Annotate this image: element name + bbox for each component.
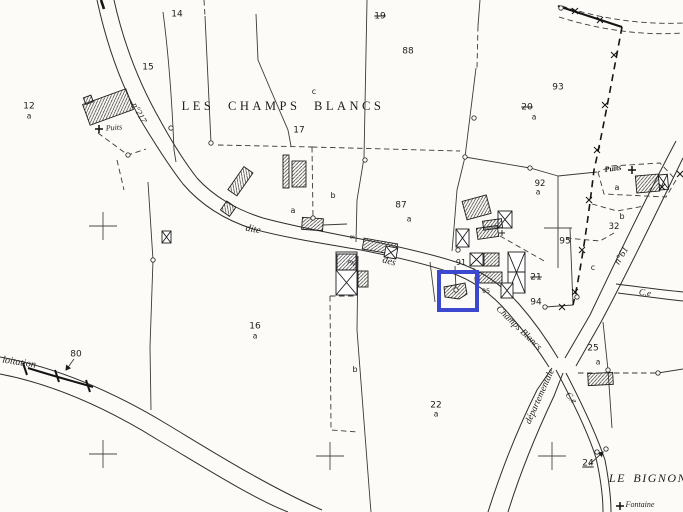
boundary-node xyxy=(169,126,173,130)
road-ce-south-edge xyxy=(618,293,683,301)
boundary-node xyxy=(595,450,599,454)
road-ce-north-edge xyxy=(616,284,683,292)
building-open-small xyxy=(162,231,171,243)
map-symbols xyxy=(89,6,683,510)
building-hatched xyxy=(228,167,253,196)
dashed-road-top-right-north xyxy=(562,6,683,23)
road-exploitation-north-edge xyxy=(0,357,322,510)
building-hatched xyxy=(220,201,235,216)
building-hatched xyxy=(81,83,134,125)
building-hatched xyxy=(283,155,289,188)
building-mixed xyxy=(336,252,357,295)
boundary-node xyxy=(472,116,476,120)
boundary-node xyxy=(456,248,460,252)
boundary-node xyxy=(151,258,155,262)
boundary-node xyxy=(543,305,547,309)
road-n217-champs-blancs-north-edge xyxy=(114,0,558,358)
boundary-node xyxy=(575,295,579,299)
boundary-node xyxy=(209,141,213,145)
boundary-node xyxy=(311,216,315,220)
survey-cross xyxy=(89,212,117,240)
building-open xyxy=(501,283,513,298)
survey-cross xyxy=(538,442,566,470)
building-hatched xyxy=(292,161,306,187)
boundary-x-mark xyxy=(586,197,592,203)
map-linework xyxy=(0,0,683,512)
boundary-x-mark xyxy=(602,102,608,108)
well-cross xyxy=(616,502,624,510)
building-hatched xyxy=(484,253,499,266)
parcel-boundaries xyxy=(66,0,683,512)
boundary-x-mark xyxy=(559,304,565,310)
road-le-bignon-west-edge xyxy=(556,370,603,512)
boundary-x-mark xyxy=(579,247,585,253)
bold-road-segment xyxy=(28,368,93,387)
well-cross xyxy=(628,166,636,174)
building-hatched xyxy=(635,173,668,193)
boundary-node xyxy=(126,153,130,157)
boundary-node xyxy=(656,371,660,375)
building-open xyxy=(470,253,483,266)
boundary-node xyxy=(606,368,610,372)
cadastral-map: LES CHAMPS BLANCSLE BIGNON141512a1988932… xyxy=(0,0,683,512)
boundary-node xyxy=(604,447,608,451)
road-departementale-west-edge xyxy=(488,368,552,512)
building-open xyxy=(456,229,469,247)
road-exploitation-south-edge xyxy=(0,374,288,512)
building-hatched xyxy=(476,226,498,240)
selection-highlight-box[interactable] xyxy=(437,270,479,312)
road-le-bignon-east-edge xyxy=(566,373,611,512)
boundary-node xyxy=(528,166,532,170)
survey-cross xyxy=(316,442,344,470)
boundary-node xyxy=(559,6,563,10)
boundary-node xyxy=(463,155,467,159)
building-hatched xyxy=(479,272,502,283)
boundary-node xyxy=(363,158,367,162)
building-hatched xyxy=(358,271,368,287)
bold-boundaries xyxy=(23,0,622,392)
dashed-boundaries xyxy=(98,0,683,432)
building-hatched xyxy=(462,195,491,220)
boundary-x-mark xyxy=(677,171,683,177)
arrow-80 xyxy=(66,359,74,370)
building-hatched xyxy=(588,372,614,385)
survey-cross xyxy=(89,440,117,468)
well-cross xyxy=(95,125,103,133)
building-open xyxy=(384,246,398,259)
road-n217-champs-blancs-south-edge xyxy=(97,0,549,367)
